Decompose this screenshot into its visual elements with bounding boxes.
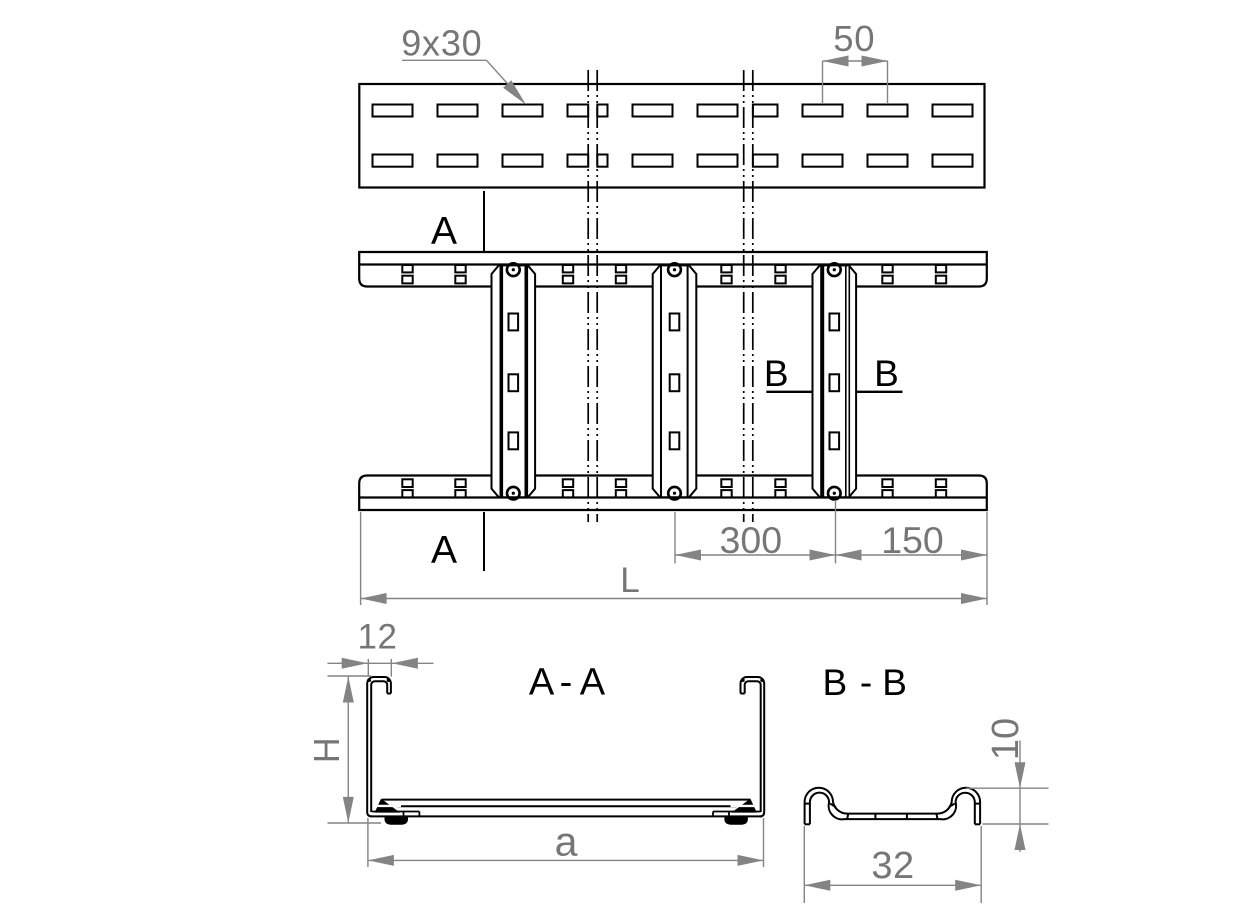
svg-text:300: 300: [720, 519, 783, 561]
svg-text:12: 12: [358, 618, 398, 657]
svg-text:-: -: [560, 662, 573, 704]
svg-text:a: a: [555, 818, 578, 864]
svg-text:50: 50: [833, 18, 875, 59]
svg-text:32: 32: [871, 845, 914, 887]
svg-text:H: H: [306, 737, 347, 763]
svg-text:10: 10: [985, 718, 1027, 760]
svg-text:B: B: [764, 353, 789, 394]
svg-text:A: A: [431, 210, 457, 253]
svg-text:B: B: [822, 662, 847, 703]
svg-text:-: -: [860, 662, 872, 703]
svg-text:9x30: 9x30: [401, 23, 482, 64]
svg-text:A: A: [529, 662, 555, 704]
svg-text:B: B: [882, 662, 907, 703]
svg-text:A: A: [431, 529, 457, 572]
svg-text:150: 150: [881, 519, 944, 561]
svg-text:B: B: [874, 353, 899, 394]
svg-text:A: A: [580, 662, 606, 704]
svg-text:L: L: [620, 561, 639, 600]
